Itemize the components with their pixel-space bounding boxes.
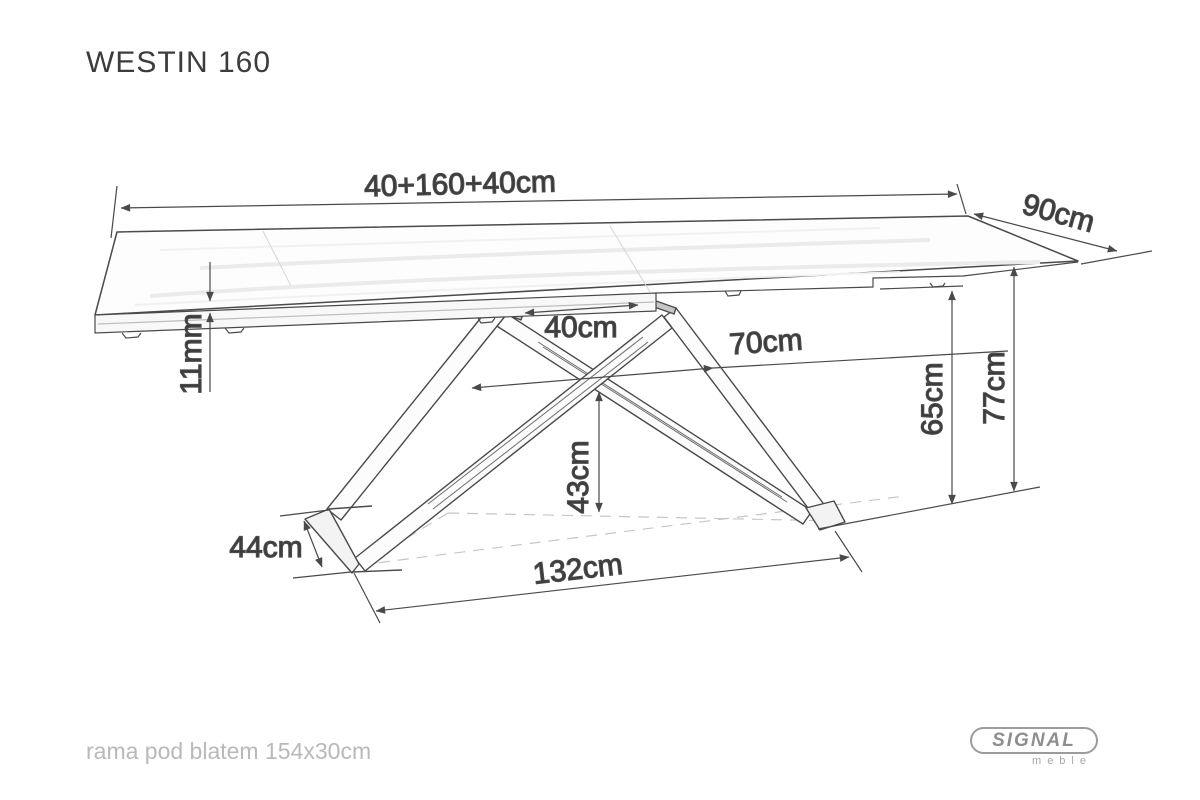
frame-note: rama pod blatem 154x30cm bbox=[86, 738, 371, 765]
brand-logo: SIGNAL meble bbox=[970, 727, 1098, 767]
left-foot bbox=[305, 509, 359, 573]
base-arm-leftfoot-to-leftplate bbox=[327, 304, 506, 520]
dim-base-width: 132cm bbox=[354, 531, 862, 623]
technical-drawing-page: 40+160+40cm 90cm 11mm 40cm 70cm 43 bbox=[0, 0, 1200, 800]
logo-pill-outline: SIGNAL bbox=[970, 727, 1098, 754]
dim-label-cross-height: 43cm bbox=[562, 440, 595, 513]
product-title: WESTIN 160 bbox=[86, 46, 271, 80]
dim-label-top-width: 40+160+40cm bbox=[364, 165, 557, 203]
logo-brand-text: SIGNAL bbox=[992, 731, 1076, 750]
dim-label-total-height: 77cm bbox=[978, 351, 1011, 424]
dim-label-base-depth: 70cm bbox=[728, 323, 803, 361]
dim-label-top-depth: 90cm bbox=[1019, 188, 1099, 239]
dim-label-top-thickness: 11mm bbox=[175, 313, 208, 394]
dim-label-foot-depth: 44cm bbox=[229, 531, 302, 564]
logo-subtitle-text: meble bbox=[970, 755, 1098, 767]
dim-label-height-to-frame: 65cm bbox=[916, 362, 949, 435]
dim-label-plate-gap: 40cm bbox=[544, 311, 617, 344]
drawing-canvas: 40+160+40cm 90cm 11mm 40cm 70cm 43 bbox=[0, 0, 1200, 800]
dim-heights: 65cm 77cm bbox=[818, 267, 1040, 529]
